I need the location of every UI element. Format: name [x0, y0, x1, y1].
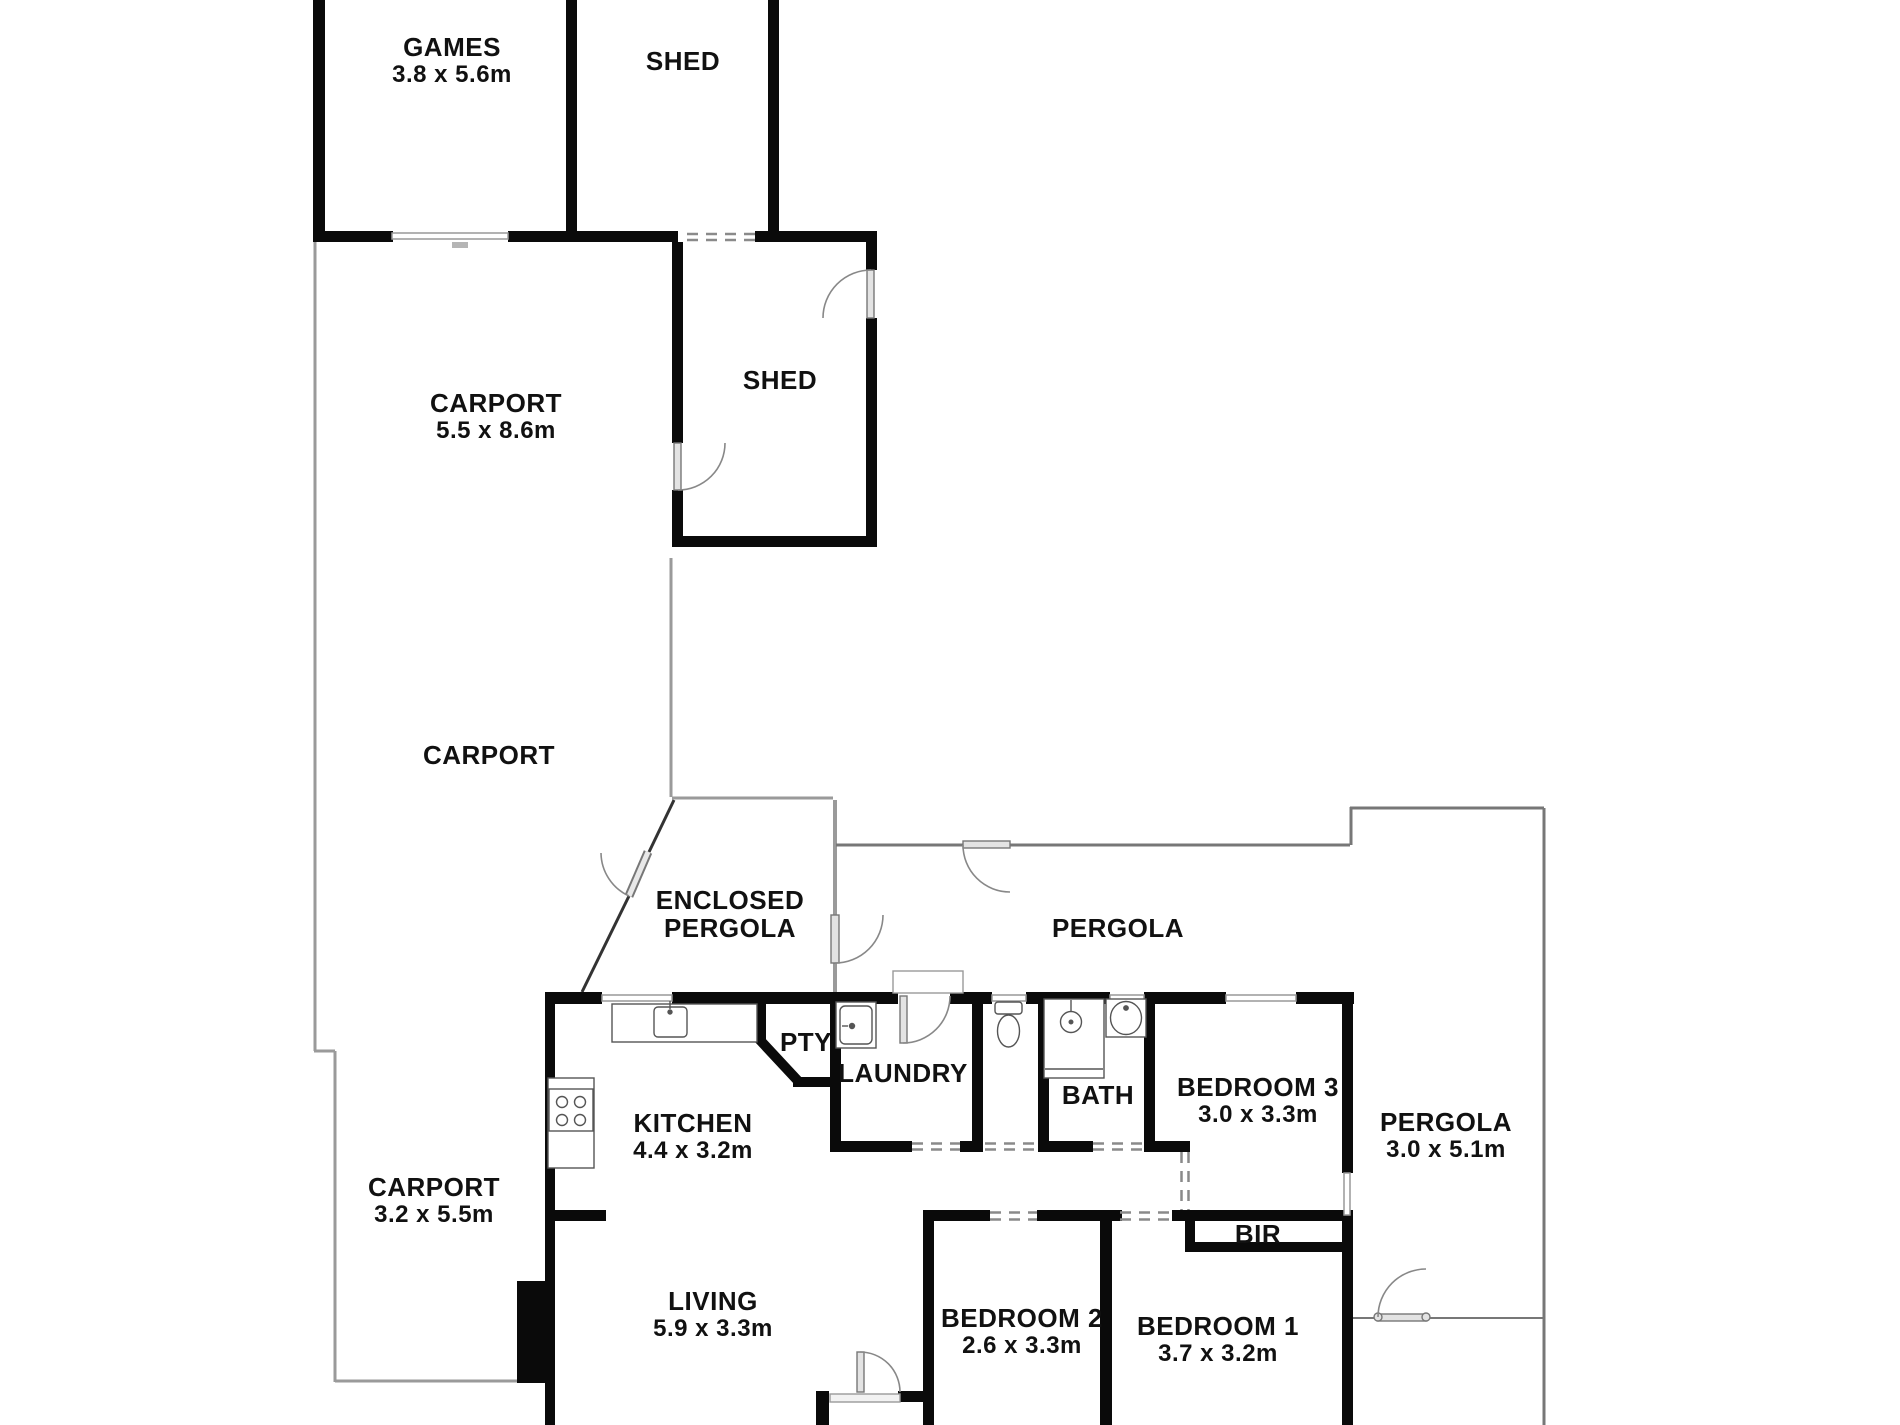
laundry-door-leaf [900, 996, 907, 1043]
kitchen-name: KITCHEN [633, 1109, 753, 1137]
laundry-bottom-wall [830, 1141, 912, 1152]
carport-main-dims: 5.5 x 8.6m [430, 417, 562, 445]
hall-sliding-door-3 [1120, 1213, 1172, 1220]
toilet-icon [995, 1002, 1022, 1047]
games-window-marker [452, 242, 468, 248]
games-bottom-wall-right [508, 231, 678, 242]
living-bottom-wall [898, 1391, 925, 1402]
carport-small-name: CARPORT [368, 1173, 500, 1201]
bedroom3-window [1226, 995, 1296, 1001]
room-label-enclosed-pergola: ENCLOSED PERGOLA [623, 886, 838, 942]
shed-rear-right-wall-lower [866, 318, 877, 547]
carport-small-dims: 3.2 x 5.5m [368, 1201, 500, 1229]
room-label-bedroom3: BEDROOM 3 3.0 x 3.3m [1177, 1073, 1339, 1129]
shed-rear-top-wall [755, 231, 877, 242]
room-label-pantry: PTY [780, 1028, 832, 1056]
games-window [392, 233, 508, 239]
games-bottom-wall-left [313, 231, 393, 242]
room-label-bir: BIR [1235, 1220, 1281, 1248]
shed-top-name: SHED [646, 47, 720, 75]
kitchen-window [602, 995, 672, 1001]
shed-rear-right-wall-upper [866, 242, 877, 270]
bedroom2-name: BEDROOM 2 [941, 1304, 1103, 1332]
room-label-bath: BATH [1062, 1081, 1134, 1109]
room-label-living: LIVING 5.9 x 3.3m [653, 1287, 773, 1343]
floor-plan: GAMES 3.8 x 5.6m SHED CARPORT 5.5 x 8.6m… [0, 0, 1900, 1425]
laundry-sliding-door [912, 1144, 960, 1150]
fireplace-block [517, 1281, 555, 1383]
bedroom3-right-wall [1342, 992, 1353, 1173]
shed-rear-left-door-arc [678, 443, 725, 490]
shed-rear-dashed-window [687, 234, 757, 240]
kitchen-sink-icon [612, 1001, 757, 1042]
room-label-games: GAMES 3.8 x 5.6m [392, 33, 512, 89]
shed-rear-left-wall-upper [672, 242, 683, 443]
living-door-sill [830, 1394, 900, 1402]
bedroom1-dims: 3.7 x 3.2m [1137, 1340, 1299, 1368]
shed-rear-left-door-leaf [674, 443, 681, 490]
shed-rear-bottom-wall [672, 536, 877, 547]
door-arcs-layer [601, 270, 1426, 1392]
bath-bottom-wall [1038, 1141, 1093, 1152]
laundry-right-wall [972, 992, 983, 1152]
room-label-shed-rear: SHED [743, 366, 817, 394]
hall-sliding-door-2 [1093, 1144, 1144, 1150]
room-label-carport-small: CARPORT 3.2 x 5.5m [368, 1173, 500, 1229]
bedroom1-side-window [1344, 1173, 1350, 1215]
shower-icon [1044, 999, 1104, 1078]
carport-main-name: CARPORT [430, 389, 562, 417]
bedroom3-corner-wall [1144, 1141, 1190, 1152]
bedroom1-name: BEDROOM 1 [1137, 1312, 1299, 1340]
pergola-screen-door-leaf [963, 841, 1010, 848]
laundry-bottom-wall-2 [960, 1141, 983, 1152]
kitchen-living-wall-stub [548, 1210, 606, 1221]
bedroom1-right-wall [1342, 1215, 1353, 1425]
pergola-top-name: PERGOLA [1052, 914, 1184, 942]
room-label-pergola-right: PERGOLA 3.0 x 5.1m [1380, 1108, 1512, 1164]
living-name: LIVING [653, 1287, 773, 1315]
room-label-bedroom1: BEDROOM 1 3.7 x 3.2m [1137, 1312, 1299, 1368]
laundry-tub-icon [836, 1002, 876, 1048]
bedroom2-sliding-door [990, 1213, 1037, 1220]
games-dims: 3.8 x 5.6m [392, 61, 512, 89]
games-name: GAMES [392, 33, 512, 61]
games-left-wall [313, 0, 325, 242]
hall-sliding-door-1 [985, 1144, 1040, 1150]
house-top-wall-5 [1144, 992, 1226, 1004]
carport-mid-name: CARPORT [423, 741, 555, 769]
diagonal-wall-upper [649, 800, 674, 852]
laundry-name: LAUNDRY [838, 1059, 968, 1087]
enclosed-pergola-name: ENCLOSED PERGOLA [623, 886, 838, 942]
pergola-right-dims: 3.0 x 5.1m [1380, 1136, 1512, 1164]
living-dims: 5.9 x 3.3m [653, 1315, 773, 1343]
shed-rear-name: SHED [743, 366, 817, 394]
room-label-shed-top: SHED [646, 47, 720, 75]
bedroom3-sliding-door [1182, 1152, 1189, 1210]
games-right-wall [566, 0, 577, 242]
room-label-carport-main: CARPORT 5.5 x 8.6m [430, 389, 562, 445]
door-leaves-layer [674, 270, 1430, 1392]
kitchen-dims: 4.4 x 3.2m [633, 1137, 753, 1165]
laundry-porch-step [893, 971, 963, 993]
bedroom2-dims: 2.6 x 3.3m [941, 1332, 1103, 1360]
room-label-laundry: LAUNDRY [838, 1059, 968, 1087]
house-top-wall-3 [950, 992, 992, 1004]
basin-icon [1106, 999, 1146, 1037]
room-label-carport-mid: CARPORT [423, 741, 555, 769]
bedroom3-dims: 3.0 x 3.3m [1177, 1101, 1339, 1129]
enclosed-pergola-door-arc [835, 915, 883, 963]
pergola-east-door-knob-right [1422, 1313, 1430, 1321]
pantry-name: PTY [780, 1028, 832, 1056]
wc-window [992, 995, 1026, 1001]
room-label-bedroom2: BEDROOM 2 2.6 x 3.3m [941, 1304, 1103, 1360]
living-door-leaf [857, 1352, 864, 1392]
pergola-east-door-arc [1378, 1269, 1426, 1317]
living-door-arc [860, 1352, 900, 1392]
shed-rear-right-door-arc [823, 270, 871, 318]
room-label-kitchen: KITCHEN 4.4 x 3.2m [633, 1109, 753, 1165]
shed-top-right-wall [768, 0, 779, 242]
floor-plan-drawing [0, 0, 1900, 1425]
laundry-door-arc [903, 996, 950, 1043]
stove-icon [548, 1078, 594, 1168]
bedroom3-name: BEDROOM 3 [1177, 1073, 1339, 1101]
living-bottom-wall-stub [816, 1391, 829, 1425]
pergola-east-door-leaf [1378, 1314, 1426, 1321]
shed-rear-right-door-leaf [867, 270, 874, 318]
bir-name: BIR [1235, 1220, 1281, 1248]
pergola-right-name: PERGOLA [1380, 1108, 1512, 1136]
bath-name: BATH [1062, 1081, 1134, 1109]
room-label-pergola-top: PERGOLA [1052, 914, 1184, 942]
pergola-screen-door-arc [963, 845, 1010, 892]
